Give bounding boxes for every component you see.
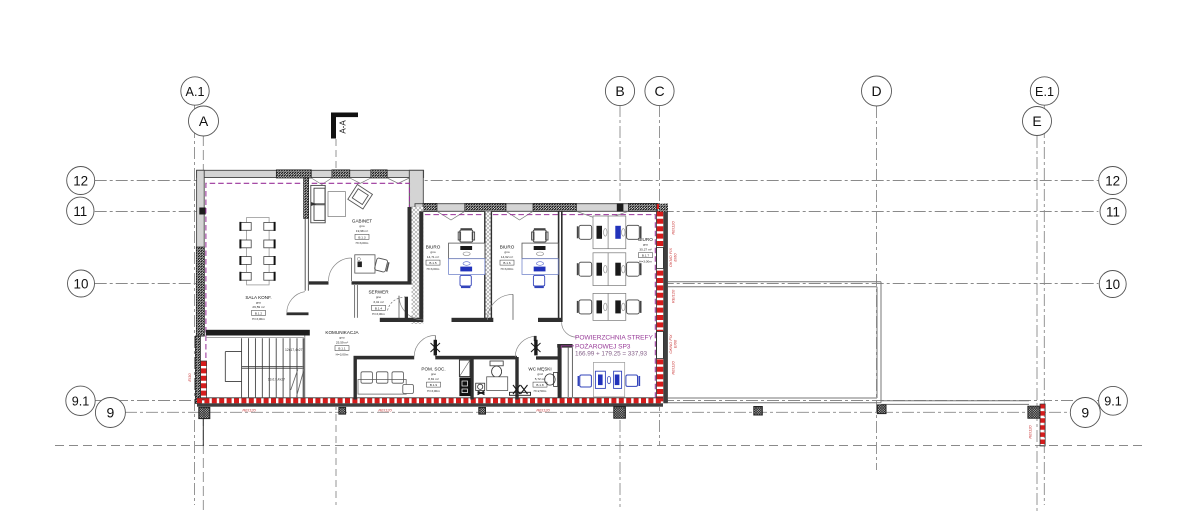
svg-text:REI120: REI120 bbox=[671, 361, 676, 375]
svg-text:BIURO: BIURO bbox=[638, 237, 653, 242]
svg-text:B.1.2: B.1.2 bbox=[255, 311, 263, 315]
svg-text:B.1.3: B.1.3 bbox=[358, 235, 366, 239]
svg-text:gno: gno bbox=[256, 300, 261, 304]
svg-text:H=3,00m: H=3,00m bbox=[427, 267, 440, 271]
svg-text:B.1.7: B.1.7 bbox=[642, 254, 650, 258]
svg-text:A: A bbox=[199, 113, 209, 129]
svg-text:H=3,00m: H=3,00m bbox=[336, 352, 349, 356]
svg-text:14,71 m²: 14,71 m² bbox=[427, 255, 439, 259]
svg-text:9.1: 9.1 bbox=[72, 395, 90, 409]
svg-text:gno: gno bbox=[431, 372, 436, 376]
svg-text:E: E bbox=[1032, 113, 1041, 129]
svg-text:14,62 m²: 14,62 m² bbox=[501, 255, 513, 259]
svg-text:gno: gno bbox=[504, 250, 509, 254]
svg-text:gnd: gnd bbox=[537, 372, 542, 376]
svg-text:REI120: REI120 bbox=[242, 408, 256, 413]
svg-text:35,27 m²: 35,27 m² bbox=[639, 247, 651, 251]
svg-text:B.1.4: B.1.4 bbox=[375, 306, 383, 310]
svg-text:12: 12 bbox=[1105, 174, 1120, 189]
svg-text:KOMUNIKACJA: KOMUNIKACJA bbox=[325, 330, 359, 335]
svg-text:11x17,4x27: 11x17,4x27 bbox=[268, 378, 285, 382]
svg-text:BIURO: BIURO bbox=[500, 245, 515, 250]
svg-text:EI60: EI60 bbox=[673, 339, 678, 348]
svg-text:gno: gno bbox=[359, 224, 364, 228]
svg-text:gno: gno bbox=[430, 250, 435, 254]
svg-text:REI120: REI120 bbox=[1028, 425, 1033, 439]
svg-text:12x17,4x27: 12x17,4x27 bbox=[285, 348, 303, 352]
svg-text:9.1: 9.1 bbox=[1104, 395, 1122, 409]
svg-text:POŻAROWEJ SP3: POŻAROWEJ SP3 bbox=[575, 341, 631, 350]
svg-text:H=3,00m: H=3,00m bbox=[501, 267, 514, 271]
svg-text:gno: gno bbox=[643, 243, 648, 247]
svg-text:WC MĘSKI: WC MĘSKI bbox=[528, 367, 551, 372]
svg-text:GABINET: GABINET bbox=[352, 219, 372, 224]
svg-text:B.1.8: B.1.8 bbox=[536, 383, 544, 387]
svg-text:10: 10 bbox=[1105, 277, 1120, 292]
svg-text:29,59 m²: 29,59 m² bbox=[252, 305, 264, 309]
svg-text:B.1.5: B.1.5 bbox=[429, 261, 437, 265]
svg-text:POM. SOC.: POM. SOC. bbox=[421, 367, 445, 372]
svg-text:EI60: EI60 bbox=[673, 253, 678, 262]
svg-text:25,59 m²: 25,59 m² bbox=[336, 340, 348, 344]
svg-text:8,81 m²: 8,81 m² bbox=[428, 377, 439, 381]
svg-text:A.1: A.1 bbox=[186, 85, 205, 99]
svg-text:H=3,00m: H=3,00m bbox=[252, 317, 265, 321]
svg-text:B.1.6: B.1.6 bbox=[503, 261, 511, 265]
svg-text:B: B bbox=[615, 83, 624, 99]
svg-text:EI30: EI30 bbox=[187, 373, 192, 382]
svg-text:REI120: REI120 bbox=[671, 221, 676, 235]
svg-text:BIURO: BIURO bbox=[426, 245, 441, 250]
svg-text:gno: gno bbox=[339, 336, 344, 340]
svg-text:REI120: REI120 bbox=[536, 408, 550, 413]
svg-text:B.1.9: B.1.9 bbox=[430, 383, 438, 387]
svg-text:REI120: REI120 bbox=[671, 289, 676, 303]
svg-text:E.1: E.1 bbox=[1035, 85, 1054, 99]
svg-text:11: 11 bbox=[1106, 205, 1120, 220]
svg-text:REI120: REI120 bbox=[378, 408, 392, 413]
svg-text:SERWER: SERWER bbox=[368, 290, 389, 295]
svg-text:H=3,00m: H=3,00m bbox=[372, 312, 385, 316]
svg-text:3,41 m²: 3,41 m² bbox=[373, 300, 384, 304]
svg-text:A-A: A-A bbox=[339, 120, 348, 134]
svg-text:gno: gno bbox=[376, 295, 381, 299]
svg-text:H=3,00m: H=3,00m bbox=[427, 389, 440, 393]
svg-text:B.1.1: B.1.1 bbox=[338, 347, 346, 351]
svg-text:166.99 + 179.25 = 337,93: 166.99 + 179.25 = 337,93 bbox=[575, 351, 648, 358]
svg-text:H=3,00m: H=3,00m bbox=[356, 241, 369, 245]
svg-text:SALA KONF.: SALA KONF. bbox=[245, 295, 271, 300]
svg-text:D: D bbox=[871, 83, 881, 99]
svg-text:POWIERZCHNIA STREFY: POWIERZCHNIA STREFY bbox=[575, 335, 653, 342]
svg-text:19,98 m²: 19,98 m² bbox=[356, 229, 368, 233]
svg-text:H=3,00m: H=3,00m bbox=[639, 259, 652, 263]
svg-text:5,72 m²: 5,72 m² bbox=[535, 377, 546, 381]
svg-text:9: 9 bbox=[107, 405, 115, 421]
svg-text:10: 10 bbox=[74, 277, 89, 292]
svg-text:12: 12 bbox=[73, 174, 88, 189]
svg-text:11: 11 bbox=[73, 204, 87, 219]
svg-text:C: C bbox=[654, 83, 664, 99]
svg-text:H=2,50m: H=2,50m bbox=[534, 389, 547, 393]
svg-text:9: 9 bbox=[1081, 405, 1089, 421]
